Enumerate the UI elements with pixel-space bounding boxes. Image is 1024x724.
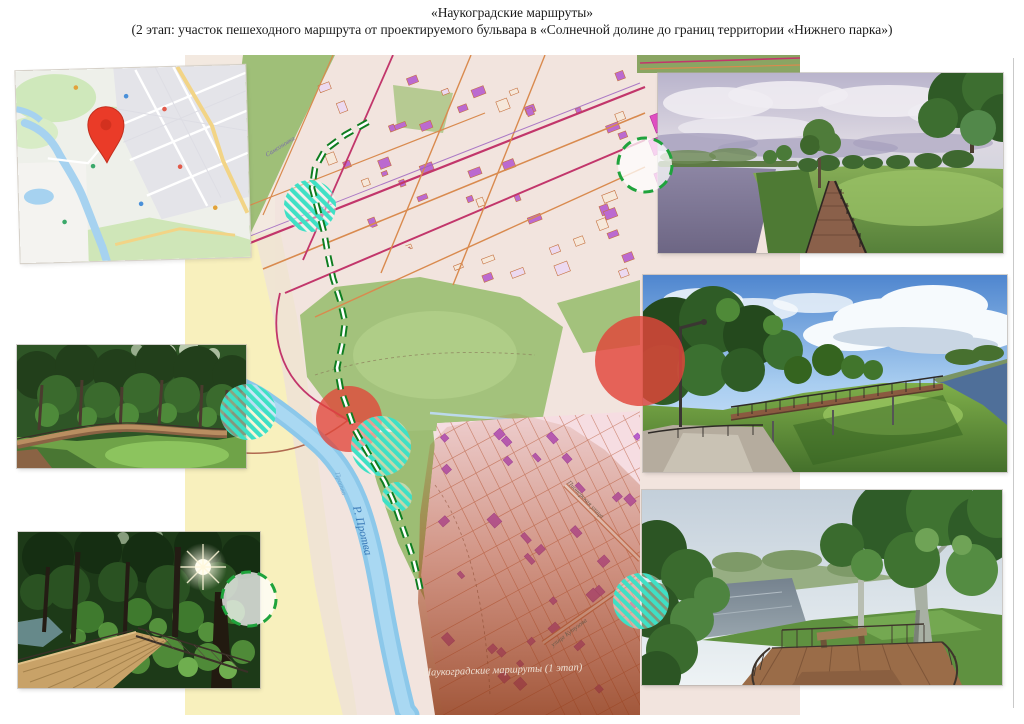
sun-icon: [179, 543, 227, 591]
page-edge-line: [1013, 58, 1014, 708]
page-subtitle: (2 этап: участок пешеходного маршрута от…: [0, 21, 1024, 38]
map-stage1-overlay: Наукоградские маршруты (1 этап): [418, 413, 640, 715]
title-block: «Наукоградские маршруты» (2 этап: участо…: [0, 4, 1024, 38]
page-title: «Наукоградские маршруты»: [0, 4, 1024, 21]
render-photo-lakeside-boardwalk: [658, 73, 1003, 253]
render-photo-footbridge: [643, 275, 1007, 472]
inset-location-map: [15, 65, 250, 263]
render-photo-forest-boardwalk: [18, 532, 260, 688]
foliage: [17, 345, 246, 427]
grass-hill: [753, 165, 1003, 253]
render-photo-observation-deck: [642, 490, 1002, 685]
render-photo-park-walkway: [17, 345, 246, 468]
presentation-slide: Наукоградские маршруты (1 этап) Самсонов…: [0, 0, 1024, 724]
